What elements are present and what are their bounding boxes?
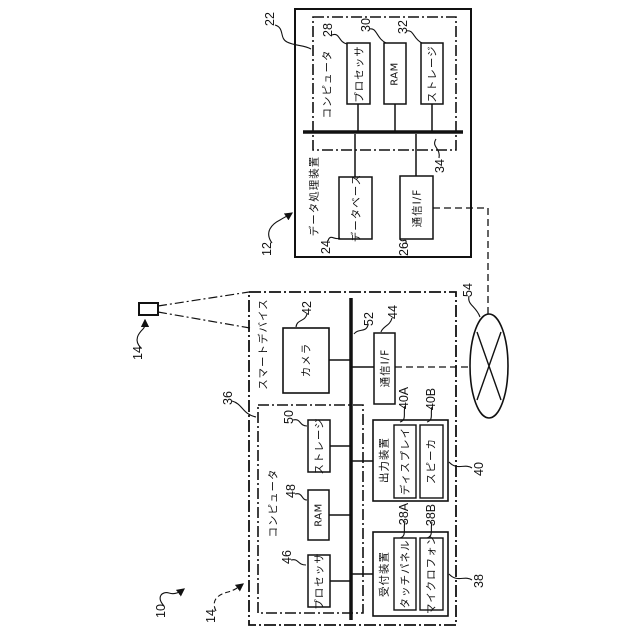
ref-26: 26 <box>397 242 411 256</box>
sd-processor-label: プロセッサ <box>312 552 327 610</box>
comm-link-dp-network <box>433 208 488 314</box>
dp-database-label: データベース <box>349 174 364 242</box>
leader-40 <box>449 462 472 468</box>
ref-36: 36 <box>221 391 235 405</box>
ref-52: 52 <box>362 312 376 326</box>
ref-38: 38 <box>472 574 486 588</box>
ref-46: 46 <box>280 550 294 564</box>
leader-44 <box>381 318 392 332</box>
sd-comm-if-label: 通信I/F <box>378 349 393 388</box>
smart-device-icon <box>139 303 158 315</box>
ref-54: 54 <box>461 283 475 297</box>
sd-storage-label: ストレージ <box>312 417 327 474</box>
ref-44: 44 <box>386 305 400 319</box>
dp-computer-label: コンピュータ <box>320 50 335 119</box>
leader-52 <box>354 325 368 334</box>
ref-10: 10 <box>154 604 168 618</box>
ref-38B: 38B <box>424 504 438 526</box>
leader-36 <box>232 401 256 417</box>
ref-42: 42 <box>300 301 314 315</box>
sd-output-device-label: 出力装置 <box>377 437 392 483</box>
dp-storage-label: ストレージ <box>425 45 440 102</box>
patent-figure: データ処理装置 コンピュータ プロセッサ RAM ストレージ データベース 通信… <box>0 0 640 640</box>
leader-arrow-14-box <box>214 584 243 611</box>
leader-34 <box>435 139 440 158</box>
ref-24: 24 <box>319 240 333 254</box>
dp-connectors <box>355 104 432 177</box>
dp-ram-label: RAM <box>390 62 401 86</box>
ref-30: 30 <box>359 18 373 32</box>
sd-reception-device-label: 受付装置 <box>377 551 392 597</box>
leader-22 <box>275 25 311 49</box>
projection-line-top <box>158 292 249 306</box>
ref-22: 22 <box>263 12 277 26</box>
dp-processor-label: プロセッサ <box>352 45 367 103</box>
sd-ram-label: RAM <box>314 503 325 527</box>
ref-28: 28 <box>321 23 335 37</box>
ref-40B: 40B <box>424 388 438 410</box>
leader-42 <box>296 314 307 327</box>
leader-54 <box>469 296 480 317</box>
ref-34: 34 <box>433 159 447 173</box>
ref-12: 12 <box>260 242 274 256</box>
ref-40: 40 <box>472 462 486 476</box>
dp-device-label: データ処理装置 <box>307 156 322 237</box>
leader-arrow-14-icon <box>137 320 145 348</box>
network-x-lines <box>477 332 501 400</box>
ref-50: 50 <box>282 410 296 424</box>
sd-computer-label: コンピュータ <box>266 469 281 538</box>
dp-comm-if-label: 通信I/F <box>410 189 425 228</box>
leader-38 <box>449 574 472 580</box>
ref-48: 48 <box>284 484 298 498</box>
sd-microphone-label: マイクロフォン <box>424 534 439 614</box>
sd-touch-panel-label: タッチパネル <box>398 540 413 609</box>
ref-38A: 38A <box>397 503 411 525</box>
sd-speaker-label: スピーカ <box>424 438 439 484</box>
ref-32: 32 <box>396 20 410 34</box>
projection-line-bottom <box>158 312 250 328</box>
sd-camera-label: カメラ <box>299 343 314 378</box>
sd-device-label: スマートデバイス <box>256 298 271 389</box>
sd-display-label: ディスプレイ <box>398 427 413 495</box>
ref-40A: 40A <box>397 387 411 409</box>
leader-arrow-12 <box>269 213 292 243</box>
ref-14-box: 14 <box>204 609 218 623</box>
ref-14-icon: 14 <box>131 346 145 360</box>
